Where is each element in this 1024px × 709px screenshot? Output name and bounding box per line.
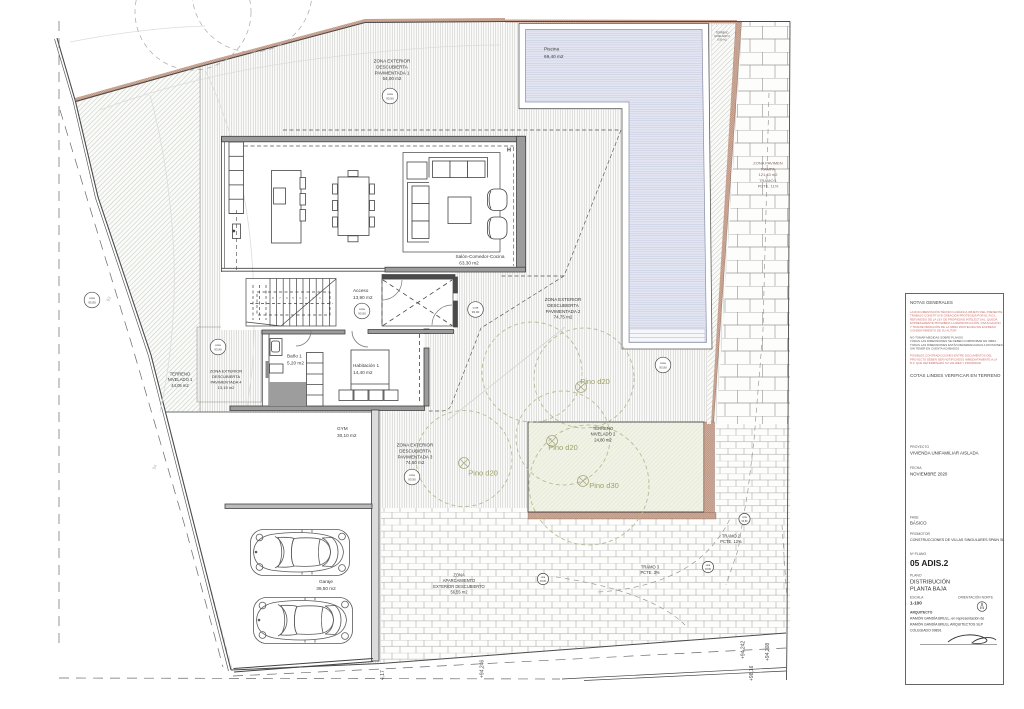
svg-text:94: 94 — [151, 463, 158, 470]
svg-text:TRAMO 1: TRAMO 1 — [759, 178, 778, 183]
svg-text:Salón-Comedor-Cocina: Salón-Comedor-Cocina — [456, 254, 505, 259]
svg-text:CONSTRUCCIONES DE VILLAS SINGU: CONSTRUCCIONES DE VILLAS SINGULARES SPAI… — [910, 538, 1004, 542]
svg-text:PAVIMENTADA 2: PAVIMENTADA 2 — [546, 309, 581, 314]
svg-text:PROYECTO: PROYECTO — [910, 445, 929, 449]
svg-text:6,90 m2: 6,90 m2 — [717, 38, 727, 42]
svg-text:121,43 m2: 121,43 m2 — [759, 172, 779, 177]
svg-text:TRAMO 3: TRAMO 3 — [641, 565, 660, 570]
svg-text:SIN TENER EN CUENTA ACABADOS: SIN TENER EN CUENTA ACABADOS — [910, 347, 959, 351]
svg-text:VIVIENDA UNIFAMILIAR AISLADA: VIVIENDA UNIFAMILIAR AISLADA — [910, 451, 979, 456]
svg-text:COLEGIADO 09891: COLEGIADO 09891 — [910, 629, 942, 633]
svg-text:ESCALA: ESCALA — [910, 596, 924, 600]
svg-text:DESCUBIERTA: DESCUBIERTA — [376, 64, 408, 69]
svg-text:APARCAMIENTO: APARCAMIENTO — [443, 578, 475, 583]
svg-text:1-100: 1-100 — [910, 601, 922, 606]
svg-text:74,50 m2: 74,50 m2 — [406, 460, 425, 465]
svg-text:ZONA PAVIMEN: ZONA PAVIMEN — [753, 161, 783, 166]
svg-text:NIVELADO 1: NIVELADO 1 — [168, 377, 193, 382]
svg-text:TERRENO: TERRENO — [170, 372, 191, 377]
svg-text:TERRENO: TERRENO — [593, 426, 614, 431]
svg-text:54,00 m2: 54,00 m2 — [383, 76, 402, 81]
svg-text:74,75 m2: 74,75 m2 — [554, 315, 573, 320]
svg-text:05 ADIS.2: 05 ADIS.2 — [910, 558, 949, 568]
svg-text:NIVELADO 2: NIVELADO 2 — [591, 432, 616, 437]
svg-text:Pino d20: Pino d20 — [468, 469, 498, 478]
svg-text:PDTE. 11%: PDTE. 11% — [758, 184, 779, 189]
svg-text:30,10 m2: 30,10 m2 — [337, 433, 357, 438]
svg-text:4,17: 4,17 — [380, 670, 386, 680]
svg-text:DESCUBIERTA: DESCUBIERTA — [547, 303, 579, 308]
svg-text:39,50 m2: 39,50 m2 — [316, 586, 336, 591]
svg-text:DISTRIBUCIÓN: DISTRIBUCIÓN — [910, 579, 950, 586]
svg-text:13,90 m2: 13,90 m2 — [353, 295, 373, 300]
svg-text:PLANO: PLANO — [910, 574, 922, 578]
svg-text:14,40 m2: 14,40 m2 — [353, 370, 373, 375]
svg-text:24,80 m2: 24,80 m2 — [594, 437, 612, 442]
svg-text:TERRENO: TERRENO — [716, 31, 729, 35]
svg-text:GYM: GYM — [337, 426, 348, 431]
svg-text:NIVELADO 2: NIVELADO 2 — [714, 34, 730, 38]
svg-text:H: H — [507, 148, 511, 154]
svg-text:56,55 m2: 56,55 m2 — [450, 590, 468, 595]
svg-text:5,20 m2: 5,20 m2 — [287, 361, 304, 366]
svg-text:63,30 m2: 63,30 m2 — [459, 261, 479, 266]
svg-text:44,05 m2: 44,05 m2 — [171, 383, 189, 388]
svg-text:FASE: FASE — [910, 516, 919, 520]
svg-text:PROMOTOR: PROMOTOR — [910, 532, 930, 536]
svg-text:D.F. QUE DETERMINARÁ SU VALIDE: D.F. QUE DETERMINARÁ SU VALIDEZ Y PRIORI… — [910, 361, 981, 365]
svg-text:TRAMO 2: TRAMO 2 — [722, 534, 741, 539]
svg-text:+94,208: +94,208 — [765, 643, 771, 661]
svg-text:DESCUBIERTA: DESCUBIERTA — [212, 374, 240, 379]
svg-text:CONSENTIMIENTO DE SU AUTOR: CONSENTIMIENTO DE SU AUTOR — [910, 329, 956, 333]
svg-text:NOTAS GENERALES: NOTAS GENERALES — [910, 300, 953, 305]
svg-text:69,40 m2: 69,40 m2 — [544, 54, 564, 59]
svg-text:+94,242: +94,242 — [741, 641, 747, 659]
svg-text:EXTERIOR DESCUBIERTO: EXTERIOR DESCUBIERTO — [433, 584, 485, 589]
svg-text:ARQUITECTO: ARQUITECTO — [910, 611, 933, 615]
svg-text:Baño 1: Baño 1 — [287, 354, 302, 359]
svg-text:PAVIMENTADA 1: PAVIMENTADA 1 — [375, 70, 410, 75]
svg-text:PCTE. 3%: PCTE. 3% — [640, 570, 659, 575]
svg-text:ZONA EXTERIOR: ZONA EXTERIOR — [545, 297, 582, 302]
svg-text:Pino d30: Pino d30 — [589, 481, 619, 490]
svg-text:Pino d20: Pino d20 — [548, 443, 578, 452]
svg-text:COTAS LINDES VERIFICAR EN TERR: COTAS LINDES VERIFICAR EN TERRENO — [910, 373, 1001, 378]
svg-text:ORIENTACIÓN NORTE: ORIENTACIÓN NORTE — [958, 595, 994, 600]
svg-text:Pino d20: Pino d20 — [580, 377, 610, 386]
svg-text:ZONA EXTERIOR: ZONA EXTERIOR — [374, 59, 411, 64]
svg-text:RAMPA: RAMPA — [761, 166, 775, 171]
svg-text:Nº PLANO: Nº PLANO — [910, 552, 926, 556]
svg-text:ZONA EXTERIOR: ZONA EXTERIOR — [397, 443, 434, 448]
svg-text:PLANTA BAJA: PLANTA BAJA — [910, 587, 947, 593]
svg-text:13,15 m2: 13,15 m2 — [218, 385, 235, 390]
svg-text:PAVIMENTADA 4: PAVIMENTADA 4 — [211, 380, 243, 385]
svg-text:PAVIMENTADA 3: PAVIMENTADA 3 — [398, 454, 433, 459]
svg-text:Garaje: Garaje — [319, 579, 333, 584]
svg-text:Piscina: Piscina — [544, 47, 560, 52]
svg-text:+94,246: +94,246 — [480, 660, 486, 678]
svg-text:Acceso: Acceso — [353, 288, 369, 293]
svg-text:PCTE. 12%: PCTE. 12% — [720, 539, 742, 544]
svg-text:FECHA: FECHA — [910, 466, 922, 470]
svg-text:ZONA EXTERIOR: ZONA EXTERIOR — [210, 369, 243, 374]
svg-text:BÁSICO: BÁSICO — [910, 521, 927, 526]
svg-text:+98,16: +98,16 — [749, 665, 755, 681]
svg-text:ZONA: ZONA — [453, 573, 465, 578]
svg-text:93: 93 — [105, 295, 112, 302]
svg-text:DESCUBIERTA: DESCUBIERTA — [399, 448, 431, 453]
svg-text:RAMÓN GANDÍA BRULL ARQUITECTOS: RAMÓN GANDÍA BRULL ARQUITECTOS SLP — [910, 622, 984, 627]
svg-text:Habitación 1: Habitación 1 — [353, 363, 379, 368]
svg-text:NOVIEMBRE 2020: NOVIEMBRE 2020 — [910, 472, 948, 477]
svg-text:RAMÓN GANDÍA BRULL, en represe: RAMÓN GANDÍA BRULL, en representación de — [910, 616, 984, 621]
